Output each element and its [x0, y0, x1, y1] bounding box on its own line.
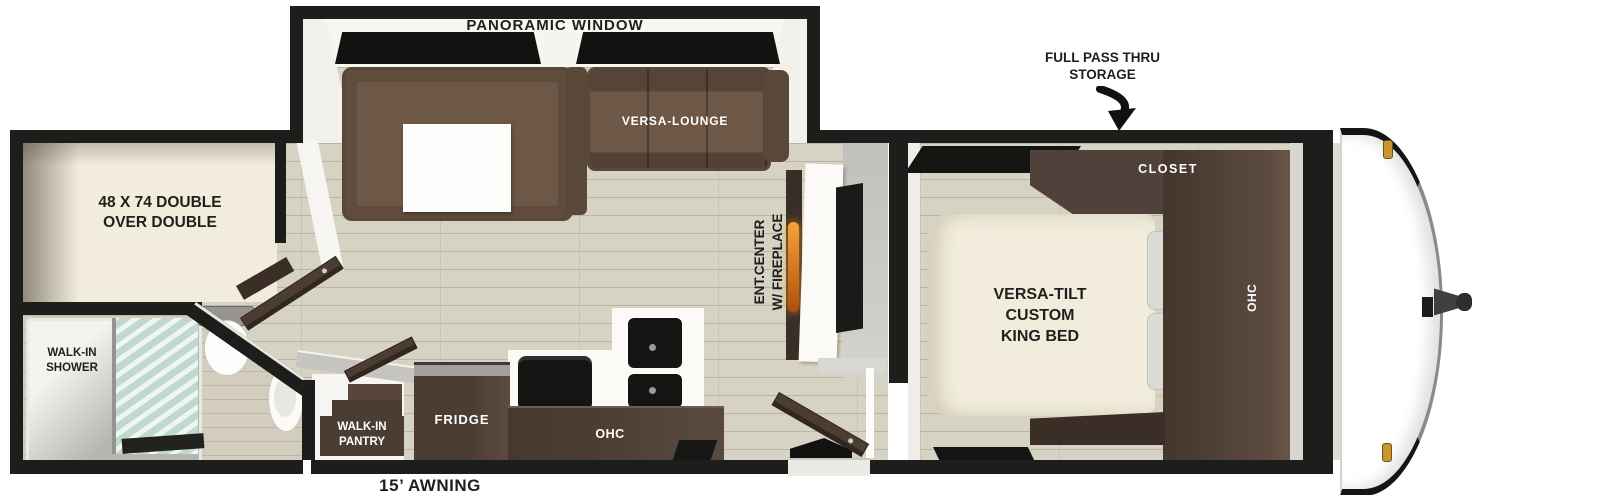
hitch-coupler — [1456, 293, 1472, 311]
kitchen-ohc-label: OHC — [540, 426, 680, 442]
bath-top-wall — [10, 302, 202, 315]
sofa-table — [403, 124, 511, 212]
bottom-wall — [10, 460, 1333, 474]
bath-pantry-wall — [302, 380, 315, 460]
bottom-wall-pantry-gap — [303, 460, 311, 474]
window-pillar — [541, 32, 576, 66]
ent-center-label: ENT.CENTER W/ FIREPLACE — [751, 167, 789, 357]
slideout-sidewall-left — [303, 19, 343, 143]
pass-thru-arrow-icon — [1092, 86, 1144, 132]
entry-threshold — [788, 458, 870, 476]
front-wall — [1303, 130, 1333, 474]
rv-floorplan: PANORAMIC WINDOW VERSA-LOUNGE ENT.CENTER… — [0, 0, 1600, 495]
bunk-door-handle — [321, 267, 328, 274]
faucet-dot-lower — [649, 387, 656, 394]
ent-center-shelf — [818, 358, 886, 373]
awning-label: 15’ AWNING — [350, 475, 510, 495]
bedroom-edge-band — [908, 143, 920, 460]
panoramic-window-right — [576, 32, 780, 64]
versa-lounge-arm — [763, 70, 789, 162]
top-wall-front-section — [807, 130, 1333, 143]
closet-label: CLOSET — [1098, 161, 1238, 177]
bedroom-ohc-cabinet — [1163, 150, 1290, 460]
pass-thru-label: FULL PASS THRU STORAGE — [1015, 50, 1190, 84]
bunk-divider-wall — [275, 143, 286, 243]
entry-mat — [673, 440, 717, 460]
top-wall-rear-section — [10, 130, 303, 143]
bunk-label: 48 X 74 DOUBLE OVER DOUBLE — [60, 193, 260, 233]
faucet-dot-upper — [649, 344, 656, 351]
pass-thru-storage-strip — [1333, 143, 1340, 460]
king-bed-label: VERSA-TILT CUSTOM KING BED — [950, 285, 1130, 347]
pantry-label: WALK-IN PANTRY — [320, 420, 404, 450]
living-bedroom-wall — [889, 143, 908, 383]
tv — [836, 183, 863, 333]
fridge-label: FRIDGE — [414, 412, 510, 429]
shower-label: WALK-IN SHOWER — [30, 346, 114, 376]
entry-door-handle — [847, 437, 854, 444]
panoramic-window-left — [335, 32, 541, 64]
cooktop — [518, 356, 592, 408]
tongue-jack — [1422, 297, 1433, 317]
versa-lounge-label: VERSA-LOUNGE — [600, 114, 750, 130]
fireplace-flame-icon — [788, 222, 799, 312]
bedroom-ohc-label: OHC — [1245, 268, 1261, 328]
marker-light-icon-bottom — [1382, 443, 1392, 462]
bedroom-right-band — [1290, 143, 1303, 460]
marker-light-icon-top — [1383, 140, 1393, 159]
hitch-icon — [1434, 286, 1458, 318]
sofa-arm-divider — [565, 67, 587, 215]
rear-wall — [10, 130, 23, 474]
panoramic-window-label: PANORAMIC WINDOW — [380, 16, 730, 36]
kitchen-sink-basin-upper — [628, 318, 682, 368]
